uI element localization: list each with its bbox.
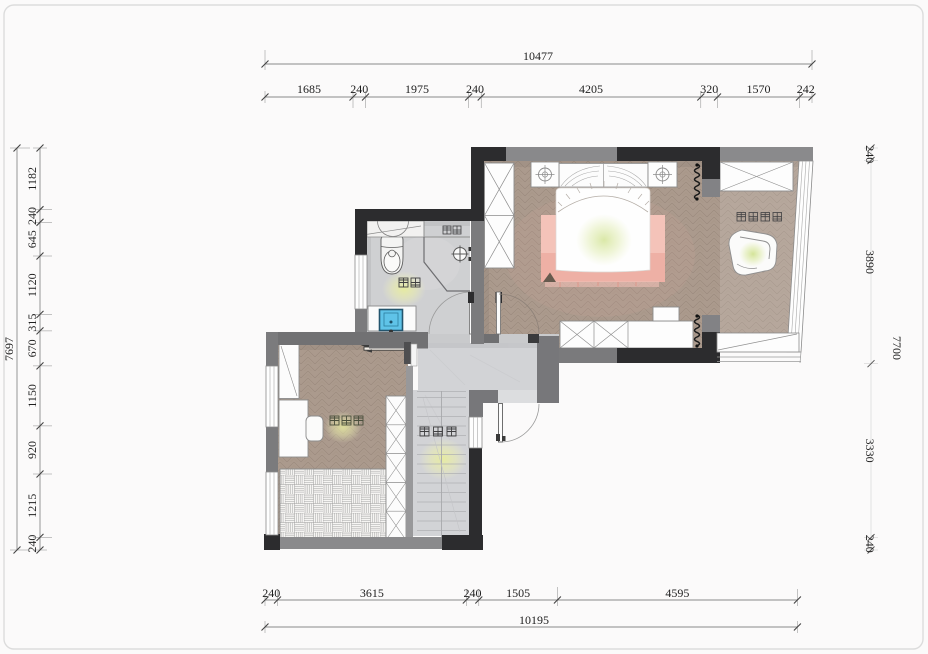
svg-text:1505: 1505: [506, 586, 530, 600]
svg-text:315: 315: [25, 314, 39, 332]
svg-text:3330: 3330: [863, 439, 877, 463]
svg-text:645: 645: [25, 230, 39, 248]
svg-text:242: 242: [797, 82, 815, 96]
svg-text:320: 320: [700, 82, 718, 96]
svg-text:1975: 1975: [405, 82, 429, 96]
svg-text:240: 240: [863, 535, 877, 553]
svg-text:670: 670: [25, 339, 39, 357]
svg-text:4205: 4205: [579, 82, 603, 96]
svg-text:1685: 1685: [297, 82, 321, 96]
svg-text:3890: 3890: [863, 250, 877, 274]
svg-text:1215: 1215: [25, 494, 39, 518]
svg-text:7700: 7700: [890, 336, 904, 360]
svg-text:1182: 1182: [25, 167, 39, 191]
svg-text:10477: 10477: [523, 49, 553, 63]
svg-text:7697: 7697: [2, 337, 16, 361]
svg-text:1150: 1150: [25, 384, 39, 408]
svg-text:1120: 1120: [25, 273, 39, 297]
svg-text:3615: 3615: [360, 586, 384, 600]
svg-text:240: 240: [863, 145, 877, 163]
svg-text:240: 240: [464, 586, 482, 600]
svg-text:240: 240: [25, 535, 39, 553]
svg-text:920: 920: [25, 441, 39, 459]
svg-text:10195: 10195: [519, 613, 549, 627]
svg-text:240: 240: [350, 82, 368, 96]
svg-text:240: 240: [25, 207, 39, 225]
svg-text:240: 240: [466, 82, 484, 96]
svg-text:1570: 1570: [747, 82, 771, 96]
svg-text:4595: 4595: [665, 586, 689, 600]
svg-text:240: 240: [262, 586, 280, 600]
